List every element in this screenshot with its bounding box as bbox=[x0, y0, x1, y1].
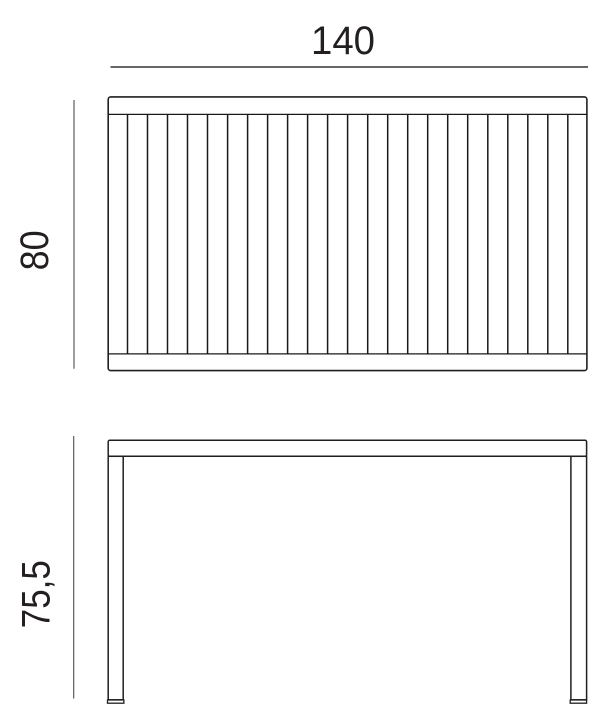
svg-text:140: 140 bbox=[311, 19, 375, 63]
svg-text:80: 80 bbox=[13, 230, 57, 270]
svg-text:75,5: 75,5 bbox=[15, 560, 59, 628]
